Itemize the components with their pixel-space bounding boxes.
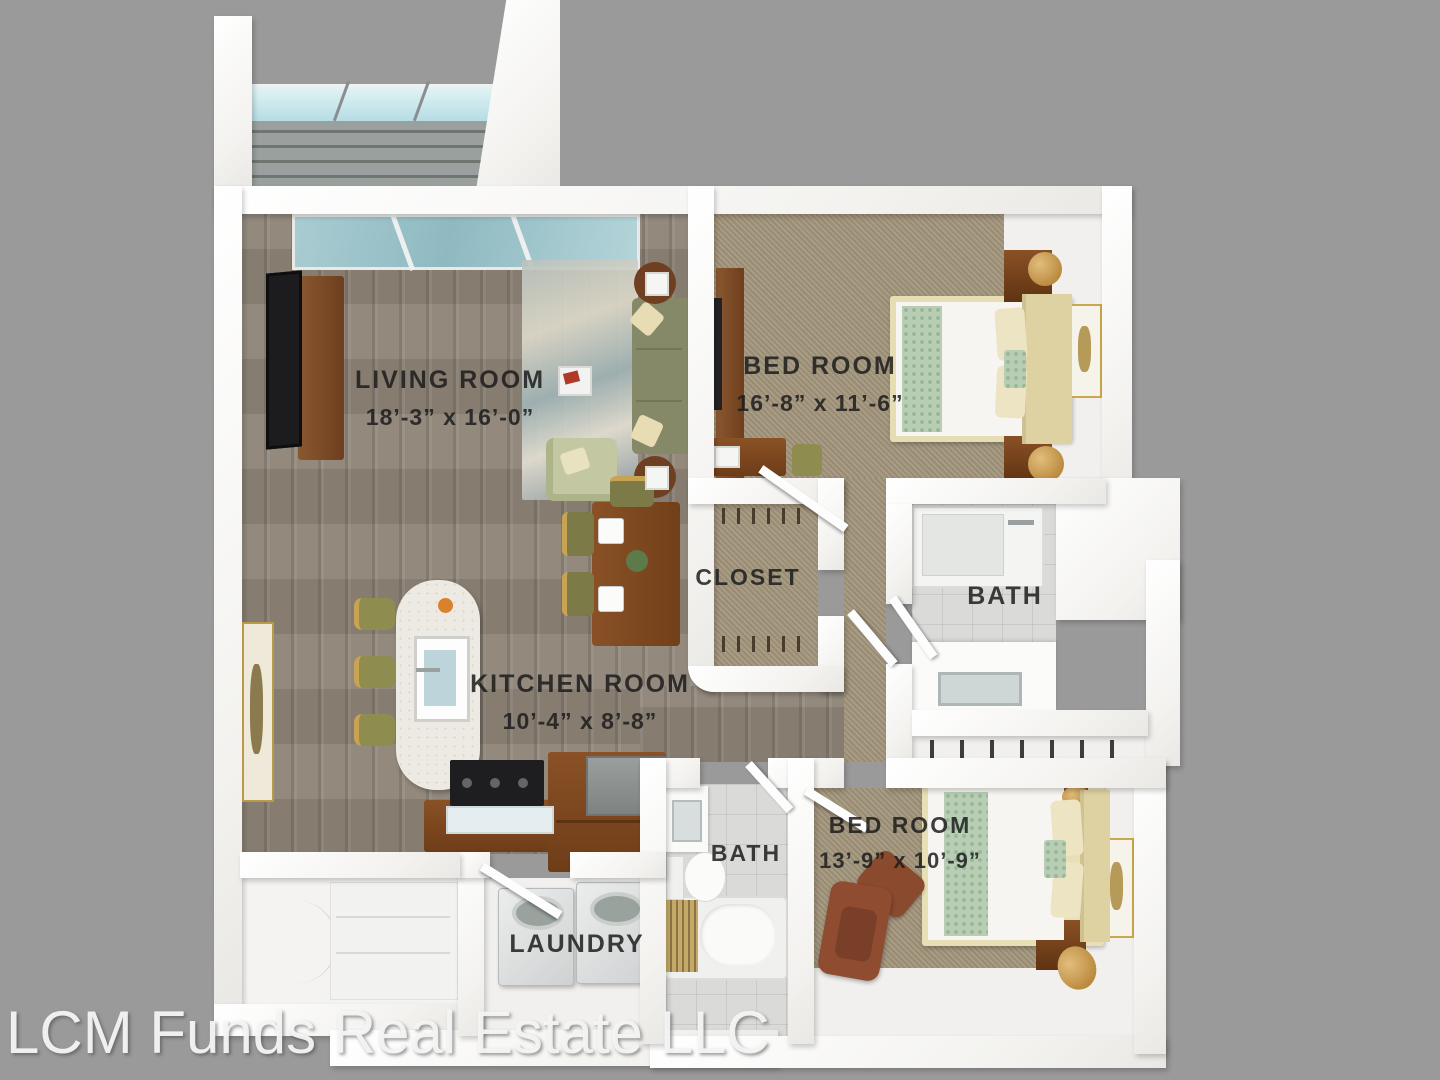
- desk-chair: [792, 444, 822, 476]
- cooktop-knob: [490, 778, 500, 788]
- room-name: BED ROOM: [730, 352, 910, 381]
- bath1-left-wall-lower: [886, 664, 912, 764]
- bath-mat: [666, 900, 698, 972]
- kitchen-bottom-wall: [240, 852, 460, 878]
- room-name: CLOSET: [692, 564, 804, 591]
- bar-stool: [354, 598, 395, 630]
- sofa-cushion-line: [636, 400, 682, 402]
- dinner-plate: [598, 586, 624, 612]
- closet-bottom-wall: [688, 666, 844, 692]
- wall-tv: [266, 270, 302, 449]
- entry-door-swing: [252, 900, 338, 984]
- closet2-hanging-rod: [930, 740, 1136, 758]
- table-lamp: [645, 466, 669, 490]
- island-faucet: [416, 668, 440, 672]
- room-name: BATH: [698, 840, 794, 867]
- room-dimensions: 16’-8” x 11’-6”: [730, 390, 910, 417]
- bar-stool: [354, 714, 395, 746]
- right-wall-bedroom2: [1134, 762, 1166, 1054]
- watermark-text: LCM Funds Real Estate LLC: [6, 998, 770, 1067]
- table-lamp: [645, 272, 669, 296]
- fruit-bowl: [438, 598, 453, 613]
- bath1-label: BATH: [950, 582, 1060, 611]
- top-wall: [214, 186, 1130, 214]
- closet-label: CLOSET: [692, 564, 804, 591]
- balcony-left-wall: [214, 16, 252, 188]
- bed2-cushion: [1044, 840, 1066, 878]
- closet-hangers-top: [722, 508, 810, 524]
- bed1-headboard: [1022, 294, 1072, 444]
- hall-carpet: [844, 478, 886, 762]
- nightstand-lamp: [1028, 252, 1062, 286]
- right-wall-bath1: [1146, 560, 1180, 766]
- wall-art-print: [1078, 326, 1091, 372]
- bathtub-basin: [700, 904, 776, 966]
- bath1-sink: [938, 672, 1022, 706]
- floor-plan-render: LIVING ROOM 18’-3” x 16’-0” BED ROOM 16’…: [0, 0, 1440, 1080]
- kitchen-label: KITCHEN ROOM 10’-4” x 8’-8”: [460, 670, 700, 735]
- hallway-wall-art-print: [250, 664, 263, 754]
- cooktop-knob: [462, 778, 472, 788]
- bed2-headboard: [1080, 790, 1110, 942]
- room-dimensions: 13’-9” x 10’-9”: [800, 848, 1000, 874]
- dryer-lid: [590, 892, 644, 926]
- table-plant: [626, 550, 648, 572]
- living-bedroom1-divider-wall: [688, 186, 714, 692]
- room-name: BED ROOM: [800, 812, 1000, 839]
- laundry-label: LAUNDRY: [502, 930, 652, 959]
- bath1-left-wall-upper: [886, 504, 912, 604]
- wall-art-print: [1110, 862, 1123, 910]
- left-wall: [214, 186, 242, 1008]
- bath1-bottom-wall: [912, 710, 1148, 736]
- island-sink-basin: [424, 650, 456, 706]
- bath2-label: BATH: [698, 840, 794, 867]
- closet-hangers-bottom: [722, 636, 810, 652]
- cooktop-knob: [518, 778, 528, 788]
- right-wall-bedroom1: [1102, 186, 1132, 512]
- room-dimensions: 10’-4” x 8’-8”: [460, 708, 700, 735]
- bath2-right-wall: [788, 758, 814, 1044]
- dinner-plate: [598, 518, 624, 544]
- living-room-label: LIVING ROOM 18’-3” x 16’-0”: [340, 366, 560, 431]
- bedroom2-label: BED ROOM 13’-9” x 10’-9”: [800, 812, 1000, 874]
- room-name: LAUNDRY: [502, 930, 652, 959]
- shower-tray: [922, 514, 1004, 576]
- dining-chair: [562, 572, 594, 616]
- tv-console: [298, 276, 344, 460]
- nightstand-lamp: [1028, 446, 1064, 482]
- desk-device: [714, 446, 740, 468]
- room-name: BATH: [950, 582, 1060, 611]
- toilet-tank: [666, 856, 684, 900]
- entry-closet-track: [336, 916, 450, 918]
- sofa-cushion-line: [636, 348, 682, 350]
- room-name: LIVING ROOM: [340, 366, 560, 395]
- bedroom1-label: BED ROOM 16’-8” x 11’-6”: [730, 352, 910, 417]
- bath1-top-wall: [886, 478, 1106, 504]
- laundry-top-wall: [570, 852, 666, 878]
- bedroom2-top-wall-east: [886, 758, 1166, 788]
- entry-closet: [330, 882, 458, 1000]
- room-dimensions: 18’-3” x 16’-0”: [340, 404, 560, 431]
- room-name: KITCHEN ROOM: [460, 670, 700, 699]
- counter-panel: [446, 806, 554, 834]
- bar-stool: [354, 656, 395, 688]
- bath2-sink: [672, 800, 702, 842]
- entry-closet-track: [336, 952, 450, 954]
- bed1-cushion: [1004, 350, 1026, 388]
- shower-faucet: [1008, 520, 1034, 525]
- dining-chair: [562, 512, 594, 556]
